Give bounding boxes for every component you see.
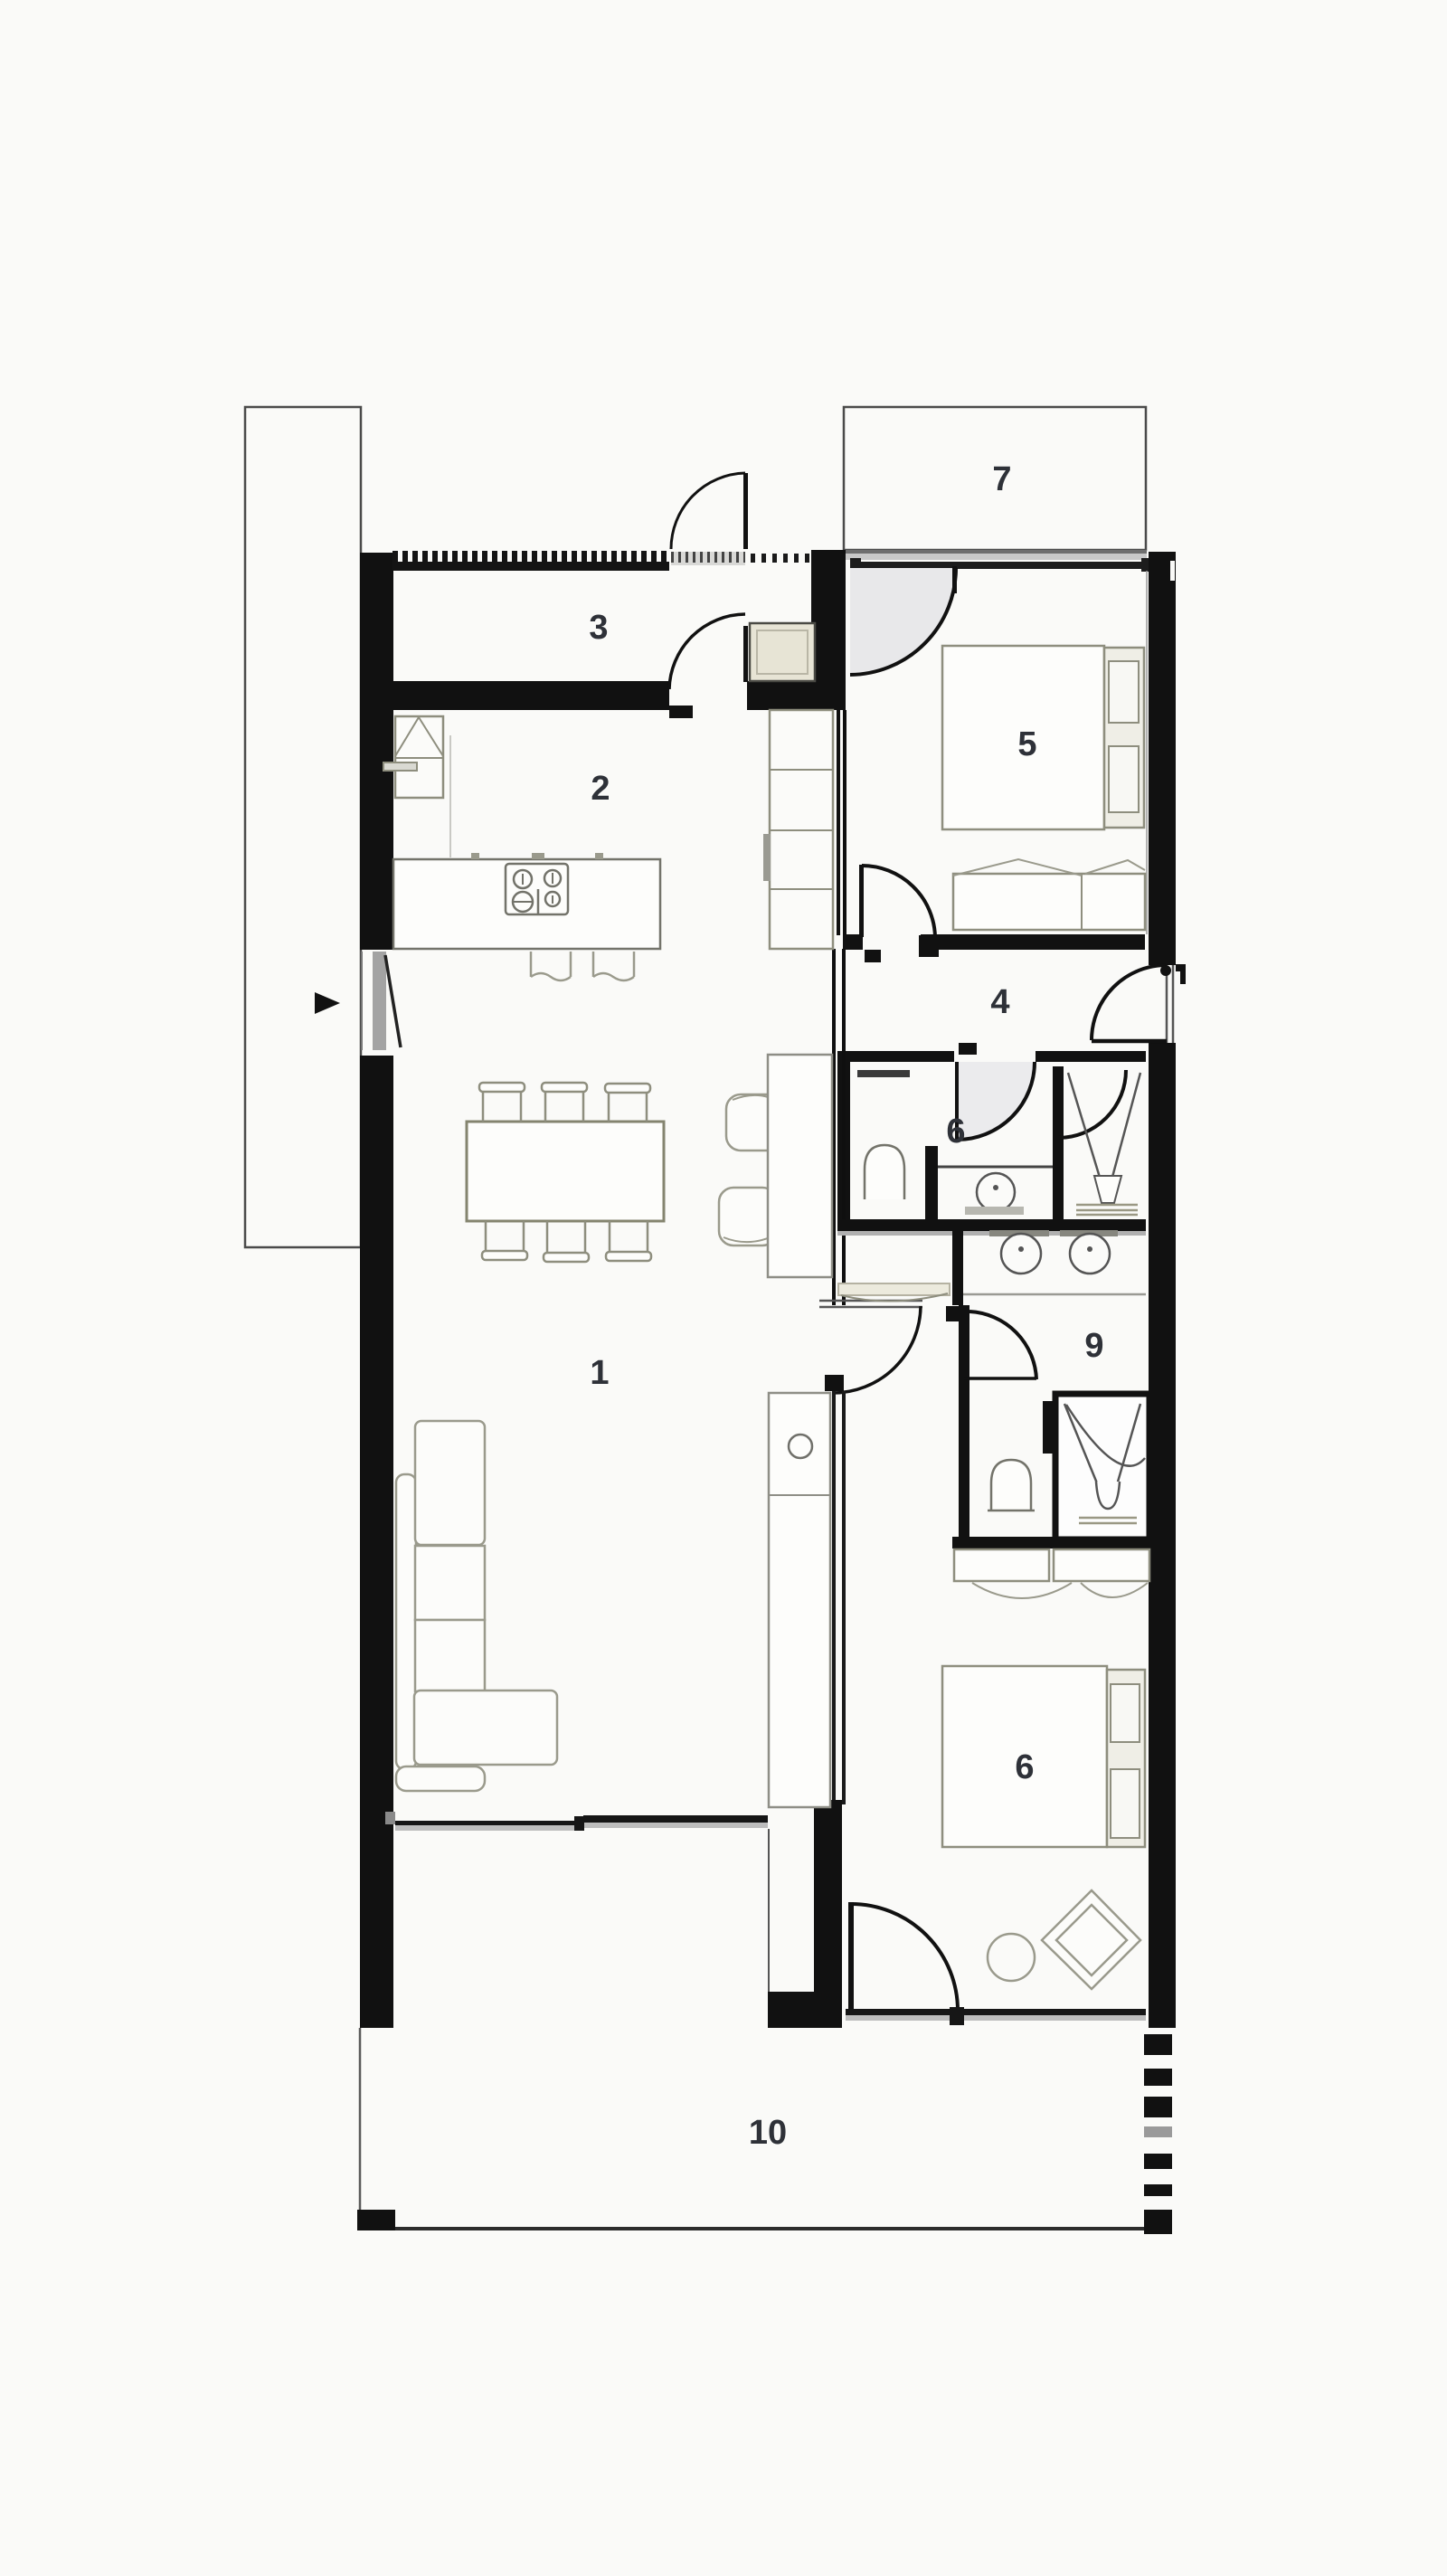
svg-text:5: 5 [1017, 725, 1036, 763]
svg-text:9: 9 [1084, 1327, 1103, 1365]
svg-text:1: 1 [590, 1354, 609, 1392]
svg-text:4: 4 [990, 983, 1009, 1021]
svg-text:7: 7 [992, 460, 1011, 498]
svg-text:6: 6 [1015, 1748, 1034, 1786]
svg-text:6: 6 [946, 1113, 965, 1151]
svg-text:2: 2 [591, 770, 610, 808]
svg-text:3: 3 [589, 609, 608, 647]
svg-text:10: 10 [749, 2114, 787, 2152]
